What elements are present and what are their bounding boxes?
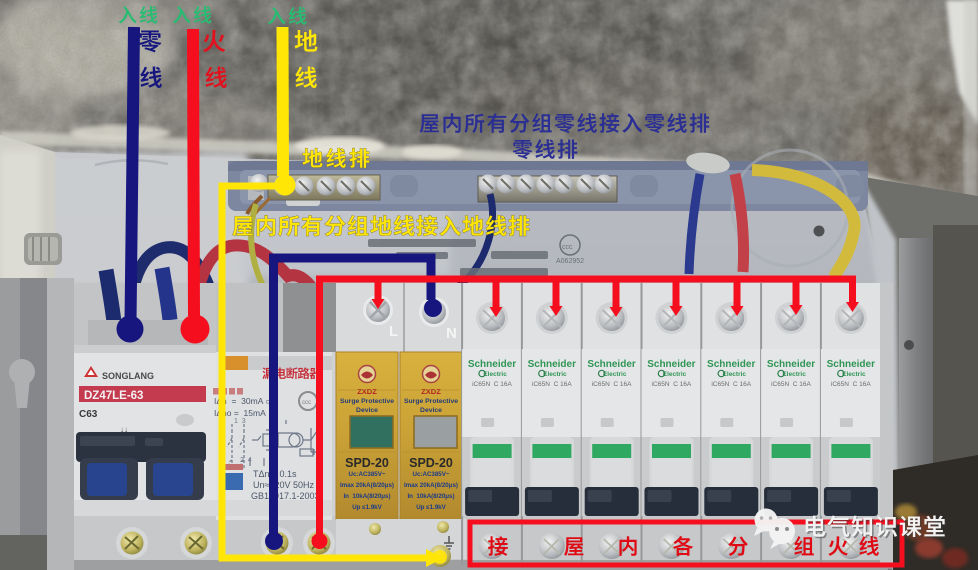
svg-text:iC65N C 16A: iC65N C 16A — [711, 381, 751, 388]
svg-text:Imax 20kA(8/20μs): Imax 20kA(8/20μs) — [404, 482, 458, 489]
svg-text:GB16917.1-2003: GB16917.1-2003 — [251, 491, 320, 501]
svg-text:Electric: Electric — [543, 371, 567, 378]
svg-text:Schneider: Schneider — [587, 359, 635, 370]
svg-text:Electric: Electric — [603, 371, 627, 378]
svg-text:Uc:AC385V~: Uc:AC385V~ — [413, 471, 450, 478]
svg-text:Schneider: Schneider — [647, 359, 695, 370]
svg-text:ccc: ccc — [562, 244, 573, 251]
svg-text:SPD-20: SPD-20 — [409, 456, 453, 470]
svg-text:SPD-20: SPD-20 — [345, 456, 389, 470]
svg-text:Schneider: Schneider — [707, 359, 755, 370]
svg-text:iC65N C 16A: iC65N C 16A — [652, 381, 692, 388]
svg-text:Electric: Electric — [483, 371, 507, 378]
svg-text:Electric: Electric — [842, 371, 866, 378]
svg-text:Surge Protective: Surge Protective — [404, 398, 458, 405]
svg-text:N: N — [446, 325, 457, 342]
svg-text:Electric: Electric — [663, 371, 687, 378]
svg-text:In 10kA(8/20μs): In 10kA(8/20μs) — [343, 493, 390, 500]
svg-text:Schneider: Schneider — [468, 359, 516, 370]
svg-text:In 10kA(8/20μs): In 10kA(8/20μs) — [407, 493, 454, 500]
svg-text:Schneider: Schneider — [767, 359, 815, 370]
svg-text:Un≈220V 50Hz: Un≈220V 50Hz — [253, 480, 314, 490]
svg-text:Device: Device — [420, 407, 442, 414]
svg-text:Surge Protective: Surge Protective — [340, 398, 394, 405]
svg-text:iC65N C 16A: iC65N C 16A — [831, 381, 871, 388]
svg-text:DZ47LE-63: DZ47LE-63 — [84, 390, 143, 402]
svg-text:Up ≤1.9kV: Up ≤1.9kV — [352, 504, 382, 511]
svg-text:ccc: ccc — [302, 400, 311, 406]
svg-text:Imax 20kA(8/20μs): Imax 20kA(8/20μs) — [340, 482, 394, 489]
svg-text:1 3: 1 3 — [234, 418, 246, 425]
svg-text:iC65N C 16A: iC65N C 16A — [592, 381, 632, 388]
svg-text:2 4: 2 4 — [240, 457, 252, 464]
svg-text:SONGLANG: SONGLANG — [102, 371, 154, 381]
svg-text:A062952: A062952 — [556, 258, 584, 265]
svg-text:ZXDZ: ZXDZ — [357, 387, 377, 396]
svg-text:Device: Device — [356, 407, 378, 414]
svg-text:Schneider: Schneider — [827, 359, 875, 370]
svg-text:iC65N C 16A: iC65N C 16A — [532, 381, 572, 388]
svg-text:iC65N C 16A: iC65N C 16A — [771, 381, 811, 388]
svg-text:Up ≤1.9kV: Up ≤1.9kV — [416, 504, 446, 511]
svg-text:iC65N C 16A: iC65N C 16A — [472, 381, 512, 388]
svg-text:C63: C63 — [79, 409, 98, 420]
svg-text:Electric: Electric — [723, 371, 747, 378]
svg-text:L: L — [389, 323, 398, 340]
svg-text:Electric: Electric — [782, 371, 806, 378]
svg-text:Uc:AC385V~: Uc:AC385V~ — [349, 471, 386, 478]
svg-text:Schneider: Schneider — [528, 359, 576, 370]
svg-text:ZXDZ: ZXDZ — [421, 387, 441, 396]
